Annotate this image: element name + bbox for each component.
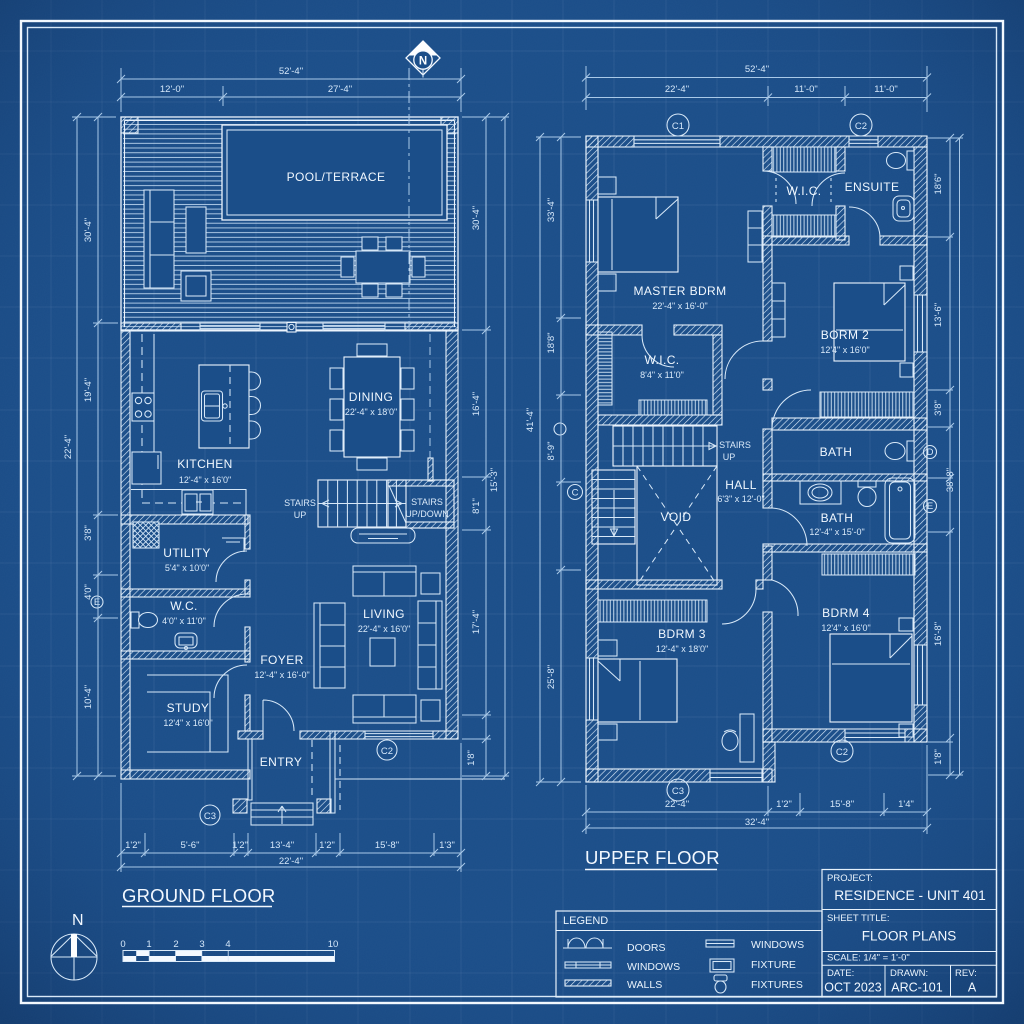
svg-text:MASTER BDRM: MASTER BDRM <box>633 284 726 298</box>
svg-text:C1: C1 <box>672 121 684 132</box>
svg-text:W.C.: W.C. <box>170 599 198 613</box>
svg-text:38'-8": 38'-8" <box>945 468 956 492</box>
svg-text:1'2": 1'2" <box>319 840 335 851</box>
svg-text:W.I.C.: W.I.C. <box>786 184 821 198</box>
svg-text:22'-4" x 16'0": 22'-4" x 16'0" <box>358 624 410 634</box>
svg-text:1'3": 1'3" <box>439 840 455 851</box>
svg-text:22'-4": 22'-4" <box>63 435 74 459</box>
svg-text:FLOOR PLANS: FLOOR PLANS <box>862 929 957 944</box>
svg-text:BATH: BATH <box>821 511 854 525</box>
svg-text:N: N <box>72 912 84 929</box>
svg-text:UP/DOWN: UP/DOWN <box>405 509 449 519</box>
svg-text:SHEET TITLE:: SHEET TITLE: <box>827 913 889 924</box>
svg-text:WINDOWS: WINDOWS <box>751 939 804 951</box>
svg-text:22'-4": 22'-4" <box>279 856 303 867</box>
svg-text:5'-6": 5'-6" <box>181 840 200 851</box>
svg-text:32'-4": 32'-4" <box>745 817 769 828</box>
svg-text:33'-4": 33'-4" <box>546 198 557 222</box>
svg-text:8'1": 8'1" <box>471 498 482 514</box>
svg-text:STAIRS: STAIRS <box>411 497 443 507</box>
svg-text:POOL/TERRACE: POOL/TERRACE <box>287 170 386 184</box>
svg-text:6'3" x 12'-0": 6'3" x 12'-0" <box>717 494 764 504</box>
svg-text:52'-4": 52'-4" <box>745 64 769 75</box>
svg-text:BORM 2: BORM 2 <box>821 328 869 342</box>
svg-text:11'-0": 11'-0" <box>794 84 818 95</box>
svg-text:C2: C2 <box>855 121 867 132</box>
svg-text:BDRM 3: BDRM 3 <box>658 627 706 641</box>
svg-text:4: 4 <box>225 939 230 950</box>
svg-text:LEGEND: LEGEND <box>563 915 608 927</box>
svg-text:WINDOWS: WINDOWS <box>627 961 680 973</box>
svg-text:3'8": 3'8" <box>83 525 94 541</box>
svg-text:PROJECT:: PROJECT: <box>827 873 873 884</box>
svg-text:12'-4" x 16'0": 12'-4" x 16'0" <box>179 475 231 485</box>
svg-text:10: 10 <box>328 939 339 950</box>
svg-text:DOORS: DOORS <box>627 942 666 954</box>
svg-text:12'4" x 16'0": 12'4" x 16'0" <box>821 623 870 633</box>
svg-text:D: D <box>927 447 934 458</box>
svg-text:DATE:: DATE: <box>827 968 854 979</box>
svg-text:8'-9": 8'-9" <box>546 442 557 461</box>
svg-text:12'-4" x 15'-0": 12'-4" x 15'-0" <box>809 527 864 537</box>
svg-text:REV:: REV: <box>955 968 977 979</box>
svg-text:UP: UP <box>294 510 307 520</box>
svg-text:1'2": 1'2" <box>776 799 792 810</box>
svg-text:12'4" x 16'0": 12'4" x 16'0" <box>163 718 212 728</box>
svg-text:E: E <box>927 501 933 512</box>
svg-text:GROUND FLOOR: GROUND FLOOR <box>122 885 276 906</box>
svg-text:8'4" x 11'0": 8'4" x 11'0" <box>640 370 684 380</box>
svg-text:15'-8": 15'-8" <box>830 799 854 810</box>
svg-text:30'-4": 30'-4" <box>83 218 94 242</box>
svg-text:STAIRS: STAIRS <box>284 498 316 508</box>
svg-text:ARC-101: ARC-101 <box>891 981 942 995</box>
svg-text:4'0" x 11'0": 4'0" x 11'0" <box>162 616 206 626</box>
svg-text:FIXTURES: FIXTURES <box>751 979 803 991</box>
svg-text:DINING: DINING <box>349 390 393 404</box>
svg-text:N: N <box>419 56 427 68</box>
svg-text:ENSUITE: ENSUITE <box>845 180 900 194</box>
svg-text:16'-4": 16'-4" <box>471 392 482 416</box>
svg-text:15'-8": 15'-8" <box>375 840 399 851</box>
svg-text:W.I.C.: W.I.C. <box>644 353 679 367</box>
svg-text:FIXTURE: FIXTURE <box>751 959 796 971</box>
svg-text:1'8": 1'8" <box>466 750 477 766</box>
svg-text:12'-4" x 18'0": 12'-4" x 18'0" <box>656 644 708 654</box>
svg-text:19'-4": 19'-4" <box>83 378 94 402</box>
svg-text:22'-4" x 16'-0": 22'-4" x 16'-0" <box>652 301 707 311</box>
svg-text:STAIRS: STAIRS <box>719 440 751 450</box>
svg-text:3'8": 3'8" <box>933 400 944 416</box>
svg-text:25'-8": 25'-8" <box>546 665 557 689</box>
svg-text:12'-4" x 16'-0": 12'-4" x 16'-0" <box>254 670 309 680</box>
svg-text:4'0": 4'0" <box>83 584 94 600</box>
svg-text:FOYER: FOYER <box>260 653 303 667</box>
svg-text:3: 3 <box>199 939 204 950</box>
svg-text:27'-4": 27'-4" <box>328 84 352 95</box>
svg-text:18'6": 18'6" <box>933 173 944 194</box>
svg-text:HALL: HALL <box>725 478 757 492</box>
svg-text:2: 2 <box>173 939 178 950</box>
svg-text:C2: C2 <box>381 746 393 757</box>
svg-text:STUDY: STUDY <box>167 701 210 715</box>
svg-text:C3: C3 <box>204 811 216 822</box>
svg-text:1'4": 1'4" <box>898 799 914 810</box>
svg-text:DRAWN:: DRAWN: <box>890 968 928 979</box>
svg-text:C3: C3 <box>672 786 684 797</box>
svg-text:0: 0 <box>120 939 125 950</box>
svg-text:SCALE: 1/4" = 1'-0": SCALE: 1/4" = 1'-0" <box>827 953 910 964</box>
svg-text:1'8": 1'8" <box>933 749 944 765</box>
svg-text:UTILITY: UTILITY <box>163 546 210 560</box>
svg-text:KITCHEN: KITCHEN <box>177 457 232 471</box>
svg-text:RESIDENCE - UNIT 401: RESIDENCE - UNIT 401 <box>834 888 986 903</box>
svg-text:12'-0": 12'-0" <box>160 84 184 95</box>
svg-text:OCT 2023: OCT 2023 <box>824 981 881 995</box>
svg-text:C: C <box>572 488 579 499</box>
svg-text:LIVING: LIVING <box>363 607 405 621</box>
svg-text:BATH: BATH <box>820 445 853 459</box>
svg-text:11'-0": 11'-0" <box>874 84 898 95</box>
svg-text:A: A <box>968 981 977 995</box>
svg-text:22'-4": 22'-4" <box>665 799 689 810</box>
svg-text:12'4" x 16'0": 12'4" x 16'0" <box>820 345 869 355</box>
svg-text:C2: C2 <box>836 747 848 758</box>
svg-text:ENTRY: ENTRY <box>260 755 302 769</box>
svg-text:WALLS: WALLS <box>627 979 662 991</box>
svg-text:17'-4": 17'-4" <box>471 610 482 634</box>
svg-text:UPPER FLOOR: UPPER FLOOR <box>585 847 720 868</box>
svg-text:52'-4": 52'-4" <box>279 66 303 77</box>
svg-text:VOID: VOID <box>661 510 692 524</box>
svg-text:22'-4": 22'-4" <box>665 84 689 95</box>
svg-text:1: 1 <box>146 939 151 950</box>
svg-text:13'-6": 13'-6" <box>933 303 944 327</box>
svg-text:18'8": 18'8" <box>546 332 557 353</box>
svg-text:BDRM 4: BDRM 4 <box>822 606 870 620</box>
svg-text:30'-4": 30'-4" <box>471 206 482 230</box>
svg-text:13'-4": 13'-4" <box>270 840 294 851</box>
svg-text:41'-4": 41'-4" <box>525 408 536 432</box>
svg-text:15'-3": 15'-3" <box>489 468 500 492</box>
svg-text:E: E <box>94 597 100 608</box>
svg-text:UP: UP <box>723 452 736 462</box>
svg-text:5'4" x 10'0": 5'4" x 10'0" <box>165 563 209 573</box>
svg-text:1'2": 1'2" <box>125 840 141 851</box>
svg-text:22'-4" x 18'0": 22'-4" x 18'0" <box>345 407 397 417</box>
svg-text:10'-4": 10'-4" <box>83 685 94 709</box>
svg-text:16'-8": 16'-8" <box>933 622 944 646</box>
